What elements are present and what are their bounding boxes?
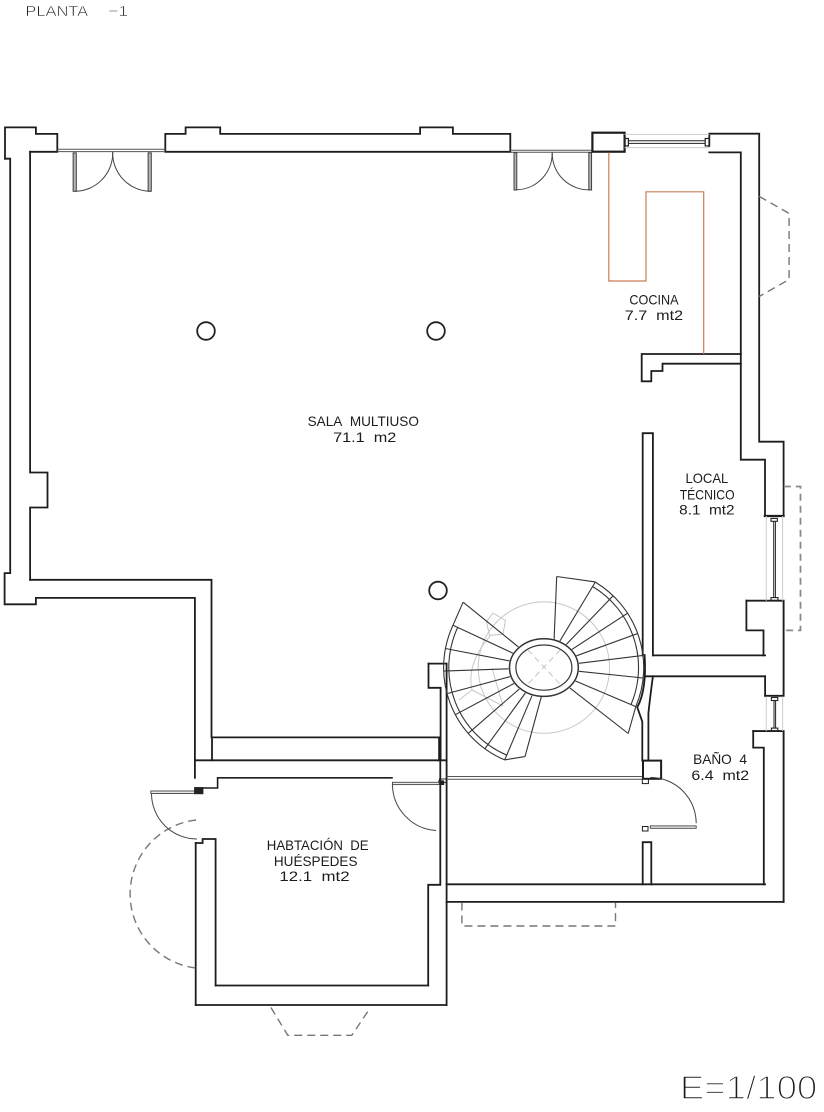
- svg-text:COCINA: COCINA: [629, 293, 679, 308]
- svg-text:7.7 mt2: 7.7 mt2: [625, 308, 683, 323]
- svg-text:PLANTA: PLANTA: [25, 3, 88, 20]
- svg-text:HUÉSPEDES: HUÉSPEDES: [274, 854, 358, 869]
- svg-text:E=1/100: E=1/100: [680, 1070, 817, 1107]
- svg-text:8.1 mt2: 8.1 mt2: [679, 503, 734, 518]
- svg-text:12.1 mt2: 12.1 mt2: [279, 869, 349, 884]
- svg-text:71.1 m2: 71.1 m2: [333, 430, 396, 445]
- svg-text:−1: −1: [108, 3, 128, 20]
- svg-text:SALA MULTIUSO: SALA MULTIUSO: [308, 414, 419, 429]
- svg-text:HABTACIÓN DE: HABTACIÓN DE: [267, 838, 369, 853]
- svg-text:LOCAL: LOCAL: [686, 471, 729, 486]
- svg-text:BAÑO 4: BAÑO 4: [693, 752, 747, 767]
- svg-text:TÉCNICO: TÉCNICO: [680, 488, 735, 503]
- svg-text:6.4 mt2: 6.4 mt2: [691, 768, 749, 783]
